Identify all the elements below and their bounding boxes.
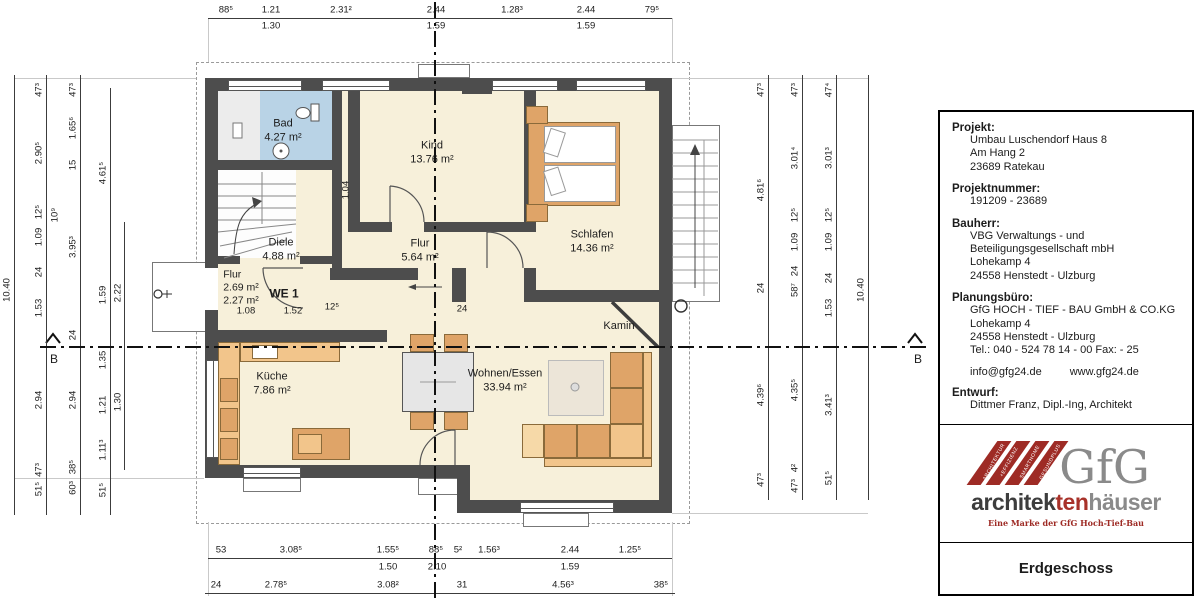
dim-label: 4.35⁵ [790, 379, 801, 401]
room-label-diele: Diele4.88 m² [262, 236, 299, 264]
section-label-b-left: B [50, 352, 58, 366]
room-label-bad: Bad4.27 m² [264, 117, 301, 145]
dim-label: 2.10 [428, 562, 447, 573]
dim-label: 1.52 [284, 306, 303, 317]
room-label-kamin: Kamin [603, 320, 634, 334]
dim-label: 47³ [34, 463, 45, 477]
dim-label: 4.56³ [552, 580, 574, 591]
title-block: Projekt: Umbau Luschendorf Haus 8 Am Han… [938, 110, 1194, 596]
dim-label: 4.39⁶ [756, 384, 767, 406]
dim-label: 88⁵ [429, 545, 444, 556]
dim-label: 79⁵ [645, 5, 660, 16]
dim-label: 2.90⁵ [34, 142, 45, 164]
dim-label: 24 [68, 330, 79, 341]
logo-stripes: ARCHITEKTUR +EFFIZIENZ SMARTHOME GESUNDP… [982, 441, 1053, 485]
dim-label: 1.56³ [478, 545, 500, 556]
dim-label: 47⁴ [824, 83, 835, 98]
room-label-kueche: Küche7.86 m² [253, 370, 290, 398]
dim-label: 15 [68, 160, 79, 171]
logo-gfg-text: GfG [1059, 447, 1150, 488]
unit-label-we1: WE 1 [269, 287, 298, 302]
dim-label: 24 [756, 283, 767, 294]
dim-label: 12⁵ [325, 302, 340, 313]
dim-label: 2.22 [113, 284, 124, 303]
dim-label: 1.59 [577, 21, 596, 32]
dim-label: 1.53 [824, 299, 835, 318]
dim-label: 2.44 [427, 5, 446, 16]
email-text: info@gfg24.de [970, 366, 1042, 378]
floor-title: Erdgeschoss [940, 542, 1192, 594]
dim-label: 3.01⁴ [790, 147, 801, 170]
dim-label: 3.95³ [68, 236, 79, 258]
dim-label: 1.55⁵ [377, 545, 399, 556]
dim-label: 1.59 [561, 562, 580, 573]
dim-label: 58⁷ [790, 283, 801, 297]
dim-label: 24 [824, 273, 835, 284]
dim-label: 2.94 [68, 391, 79, 410]
dim-label: 88⁵ [219, 5, 234, 16]
dim-label: 51⁵ [34, 482, 45, 497]
dim-label: 24 [211, 580, 222, 591]
dim-label: 2.31² [330, 5, 352, 16]
dim-label: 12⁵ [790, 208, 801, 223]
logo-wordmark: architektenhäuser [971, 489, 1161, 516]
dim-label: 10⁹ [50, 208, 61, 223]
dim-label: 1.25⁵ [619, 545, 641, 556]
dim-label: 47³ [68, 83, 79, 97]
dim-label: 2.94 [34, 391, 45, 410]
projekt-label: Projekt: [952, 122, 1180, 134]
dim-label: 12⁵ [824, 208, 835, 223]
dim-label: 24 [457, 304, 468, 315]
company-logo: ARCHITEKTUR +EFFIZIENZ SMARTHOME GESUNDP… [940, 424, 1192, 543]
dim-label: 1.11³ [98, 440, 109, 461]
dim-label: 38⁵ [654, 580, 669, 591]
dim-label: 47³ [790, 83, 801, 97]
dim-label: 31 [457, 580, 468, 591]
bauherr-label: Bauherr: [952, 218, 1180, 230]
dim-label: 1.28³ [501, 5, 523, 16]
dim-label: 47³ [756, 473, 767, 487]
dim-label: 1.35 [98, 351, 109, 370]
dim-label: 53 [216, 545, 227, 556]
dim-label: 1.21 [98, 396, 109, 415]
dim-label: 47³ [790, 479, 801, 493]
dim-label: 3.08² [377, 580, 399, 591]
logo-tagline: Eine Marke der GfG Hoch-Tief-Bau [988, 518, 1144, 528]
section-label-b-right: B [914, 352, 922, 366]
dim-label: 47³ [756, 83, 767, 97]
website-text: www.gfg24.de [1070, 366, 1139, 378]
floor-plan-sheet: B B Bad4.27 m² Kind13.76 m² Schlafen14.3… [0, 0, 1200, 600]
dim-label: 24 [790, 266, 801, 277]
room-label-flur-we1: Flur 2.69 m² 2.27 m² [223, 268, 259, 307]
dim-label: 1.21 [262, 5, 281, 16]
room-label-schlafen: Schlafen14.36 m² [570, 228, 613, 256]
dim-label: 4.61⁵ [98, 162, 109, 184]
dim-label: 5² [454, 545, 462, 556]
dim-label: 2.44 [577, 5, 596, 16]
dim-label: 3.01³ [824, 147, 835, 169]
dim-label: 1.09 [34, 228, 45, 247]
section-line-vertical [434, 2, 436, 598]
dim-label: 4² [790, 464, 801, 472]
dim-label: 1.59 [427, 21, 446, 32]
projektnummer-label: Projektnummer: [952, 183, 1180, 195]
dim-label: 3.08⁵ [280, 545, 302, 556]
room-label-kind: Kind13.76 m² [410, 139, 453, 167]
section-line-bb [40, 346, 928, 348]
dim-label: 4.81⁶ [756, 179, 767, 201]
dim-label: 1.30 [113, 393, 124, 412]
title-block-info: Projekt: Umbau Luschendorf Haus 8 Am Han… [940, 112, 1192, 412]
dim-label: 1.09 [824, 233, 835, 252]
dim-label: 47³ [34, 83, 45, 97]
dim-label: 24 [34, 267, 45, 278]
dim-label: 51⁵ [824, 471, 835, 486]
room-label-wohnen: Wohnen/Essen33.94 m² [468, 367, 542, 395]
dim-label: 10.40 [856, 278, 867, 302]
dim-label: 1.30 [262, 21, 281, 32]
dim-label: 2.78⁵ [265, 580, 287, 591]
dim-label: 1.50 [379, 562, 398, 573]
dim-label: 1.59 [98, 286, 109, 305]
dim-label: 60³ [68, 481, 79, 495]
dim-label: 38⁵ [68, 460, 79, 475]
dim-label: 1.65⁶ [68, 117, 79, 139]
entwurf-label: Entwurf: [952, 387, 1180, 399]
dim-label: 1.08 [237, 306, 256, 317]
dim-label: 2.44 [561, 545, 580, 556]
planungsbuero-label: Planungsbüro: [952, 292, 1180, 304]
dim-label: 3.41³ [824, 394, 835, 416]
dim-label: 10.40 [2, 278, 13, 302]
dim-label: 1.04 [341, 181, 352, 200]
dim-label: 1.09 [790, 233, 801, 252]
dim-label: 51⁵ [98, 483, 109, 498]
dim-label: 12⁵ [34, 205, 45, 220]
dim-label: 1.53 [34, 299, 45, 318]
